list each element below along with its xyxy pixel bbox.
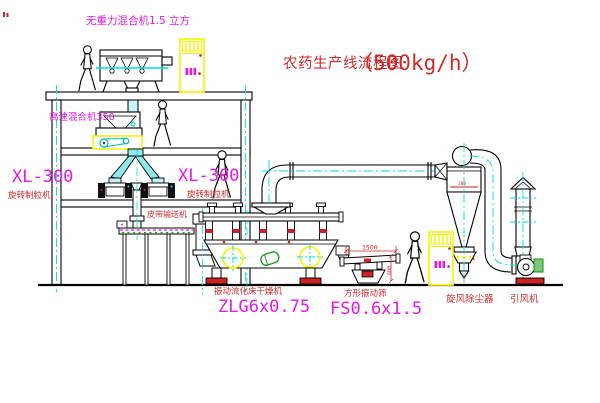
label-dryer-model: ZLG6x0.75 [218,297,310,317]
person-figure [79,46,96,91]
label-dryer-name: 振动流化床干燥机 [214,286,283,297]
control-cabinet-roof [180,39,204,92]
label-gravity-mixer: 无重力混合机1.5 立方 [86,14,190,27]
label-xl300-left: XL-300 [12,167,73,187]
granulator-left [98,178,132,200]
fluid-bed-dryer [199,203,349,284]
plot-mark [3,12,9,17]
screen-width-dim: 600 [387,266,393,275]
pesticide-line-flow-diagram: 300 1500 [0,0,600,403]
label-cyclone: 旋风除尘器 [446,293,494,305]
gravity-free-mixer [96,50,172,92]
cyclone-dim: 300 [458,181,466,187]
person-figure [405,232,424,284]
label-belt-conveyor: 皮带输送机 [147,209,187,219]
exhaust-duct [252,162,437,214]
high-speed-mixer-drive [93,136,142,149]
label-screen-model: FS0.6x1.5 [330,299,422,319]
feed-pipe-roof [128,100,138,112]
label-screen-name: 方形振动筛 [344,288,387,299]
cad-canvas: 300 1500 [0,0,600,403]
label-fan: 引风机 [510,293,539,305]
induced-draft-fan [516,255,544,284]
belt-conveyor [117,221,194,285]
label-high-speed-mixer: 高速混合机350 [49,111,115,123]
label-xl300-right: XL-300 [178,166,239,186]
label-granulator-left: 旋转制粒机 [8,190,51,201]
diagram-title-capacity: （500kg/h） [352,51,483,75]
screen-length-dim: 1500 [362,244,378,252]
person-figure [154,101,171,147]
granulator-right [141,178,175,200]
control-cabinet-ground [429,232,453,285]
label-granulator-right: 旋转制粒机 [187,189,230,200]
